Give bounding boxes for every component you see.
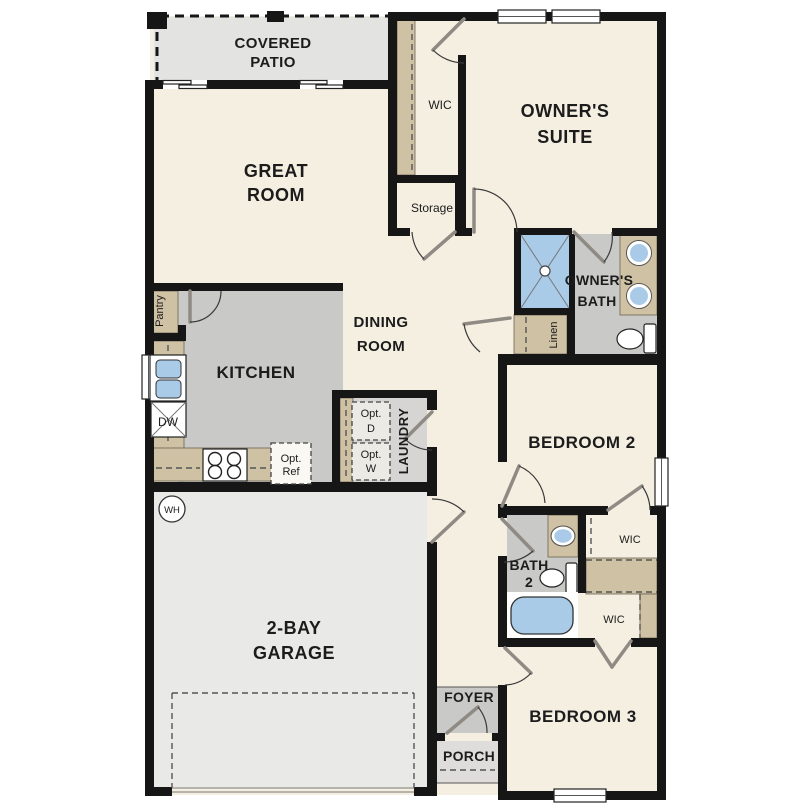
shower — [520, 234, 570, 309]
range-stove — [203, 449, 247, 481]
label-garage-2: GARAGE — [253, 643, 335, 663]
label-water-heater: WH — [164, 505, 180, 516]
window-owners-suite-2 — [552, 10, 600, 23]
label-great-room: GREAT — [244, 161, 308, 181]
label-storage: Storage — [411, 201, 453, 215]
label-covered-patio: COVERED — [235, 35, 312, 52]
label-dining-room: DINING — [354, 314, 409, 331]
label-kitchen: KITCHEN — [216, 363, 295, 382]
kitchen-sink — [150, 355, 186, 401]
wic3-shelf — [640, 594, 657, 638]
label-owners-suite-2: SUITE — [537, 127, 593, 147]
label-owners-bath-2: BATH — [577, 293, 616, 309]
label-wic-bedroom3: WIC — [603, 614, 624, 626]
label-garage: 2-BAY — [267, 618, 322, 638]
label-foyer: FOYER — [444, 689, 494, 705]
vanity-sink-1 — [627, 241, 652, 266]
floor-plan-drawing: COVERED PATIO GREAT ROOM WIC OWNER'S SUI… — [0, 0, 810, 810]
label-opt-washer: Opt. — [361, 449, 382, 461]
label-opt-dryer-2: D — [367, 423, 375, 435]
floor-plan-page: COVERED PATIO GREAT ROOM WIC OWNER'S SUI… — [0, 0, 810, 810]
label-pantry: Pantry — [154, 295, 166, 327]
label-owners-bath: OWNER'S — [565, 272, 633, 288]
label-opt-dryer: Opt. — [361, 408, 382, 420]
label-bedroom2: BEDROOM 2 — [528, 433, 635, 452]
window-bedroom3 — [554, 789, 606, 802]
label-porch: PORCH — [443, 748, 495, 764]
bath2-sink — [551, 526, 575, 546]
label-laundry: LAUNDRY — [396, 408, 411, 475]
label-dishwasher: DW — [158, 415, 179, 429]
label-linen: Linen — [548, 322, 560, 349]
label-wic-bedroom2: WIC — [619, 534, 640, 546]
label-bath2-2: 2 — [525, 574, 533, 590]
label-opt-fridge: Opt. — [281, 453, 302, 465]
label-opt-fridge-2: Ref — [282, 466, 300, 478]
label-owners-suite: OWNER'S — [521, 101, 610, 121]
window-owners-suite-1 — [498, 10, 546, 23]
label-bedroom3: BEDROOM 3 — [529, 707, 636, 726]
window-bedroom2 — [655, 458, 668, 506]
bathtub — [507, 592, 578, 638]
wic-shelf-band — [586, 558, 657, 594]
label-owner-wic: WIC — [428, 98, 452, 112]
label-great-room-2: ROOM — [247, 185, 305, 205]
sliding-door-great-room-1 — [163, 80, 207, 89]
label-opt-washer-2: W — [366, 463, 377, 475]
label-covered-patio-2: PATIO — [250, 54, 296, 71]
label-bath2: BATH — [509, 557, 548, 573]
label-dining-room-2: ROOM — [357, 338, 405, 355]
room-garage-floor — [154, 492, 427, 787]
sliding-door-great-room-2 — [300, 80, 343, 89]
